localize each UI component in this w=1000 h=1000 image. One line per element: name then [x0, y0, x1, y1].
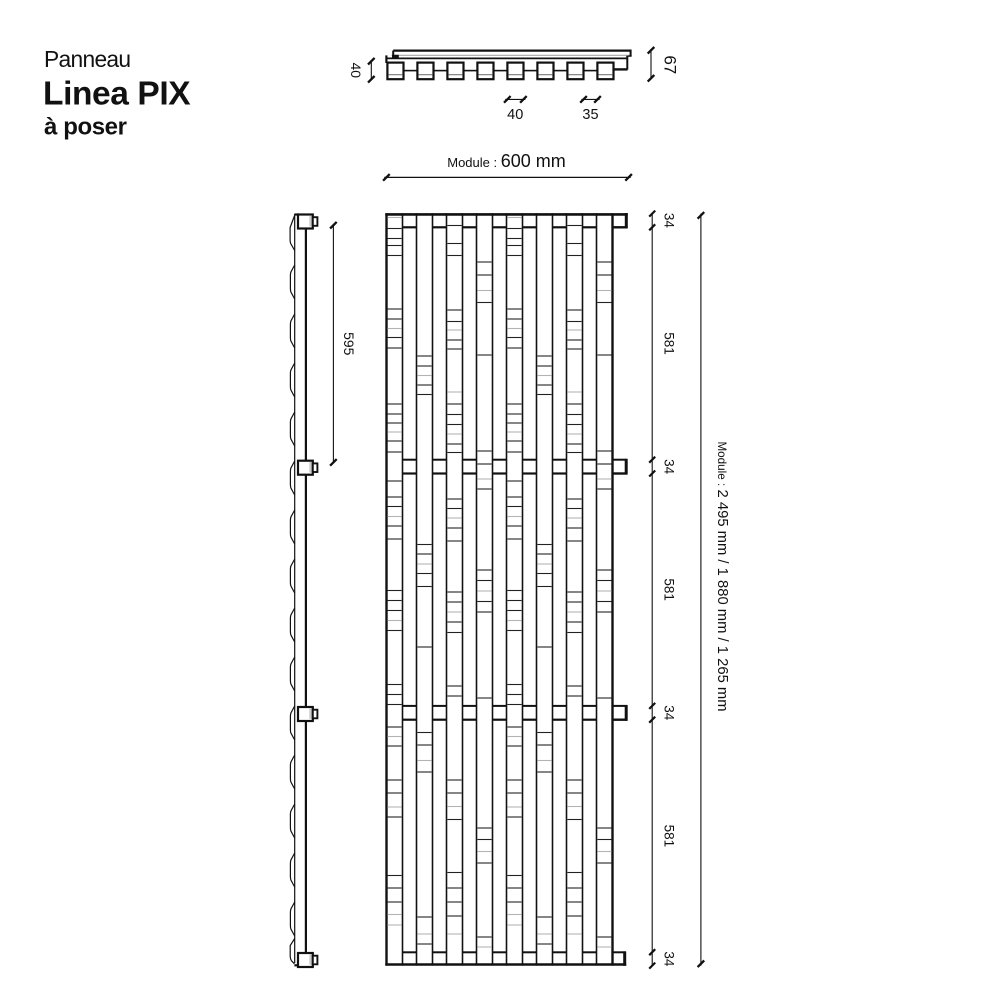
svg-text:34: 34: [662, 213, 677, 229]
svg-text:Panneau: Panneau: [44, 46, 130, 72]
svg-text:à poser: à poser: [44, 114, 127, 141]
svg-text:581: 581: [662, 825, 677, 848]
svg-text:595: 595: [341, 332, 357, 356]
svg-text:Module : 2 495 mm / 1 880 mm /: Module : 2 495 mm / 1 880 mm / 1 265 mm: [714, 441, 730, 711]
svg-text:581: 581: [662, 332, 677, 355]
svg-text:40: 40: [507, 107, 523, 123]
svg-text:581: 581: [662, 578, 677, 601]
svg-text:34: 34: [662, 459, 677, 475]
svg-text:34: 34: [662, 951, 677, 967]
svg-text:40: 40: [348, 63, 364, 79]
svg-text:35: 35: [582, 107, 598, 123]
svg-text:Linea PIX: Linea PIX: [43, 76, 191, 113]
svg-text:67: 67: [660, 55, 679, 74]
svg-text:34: 34: [662, 705, 677, 721]
